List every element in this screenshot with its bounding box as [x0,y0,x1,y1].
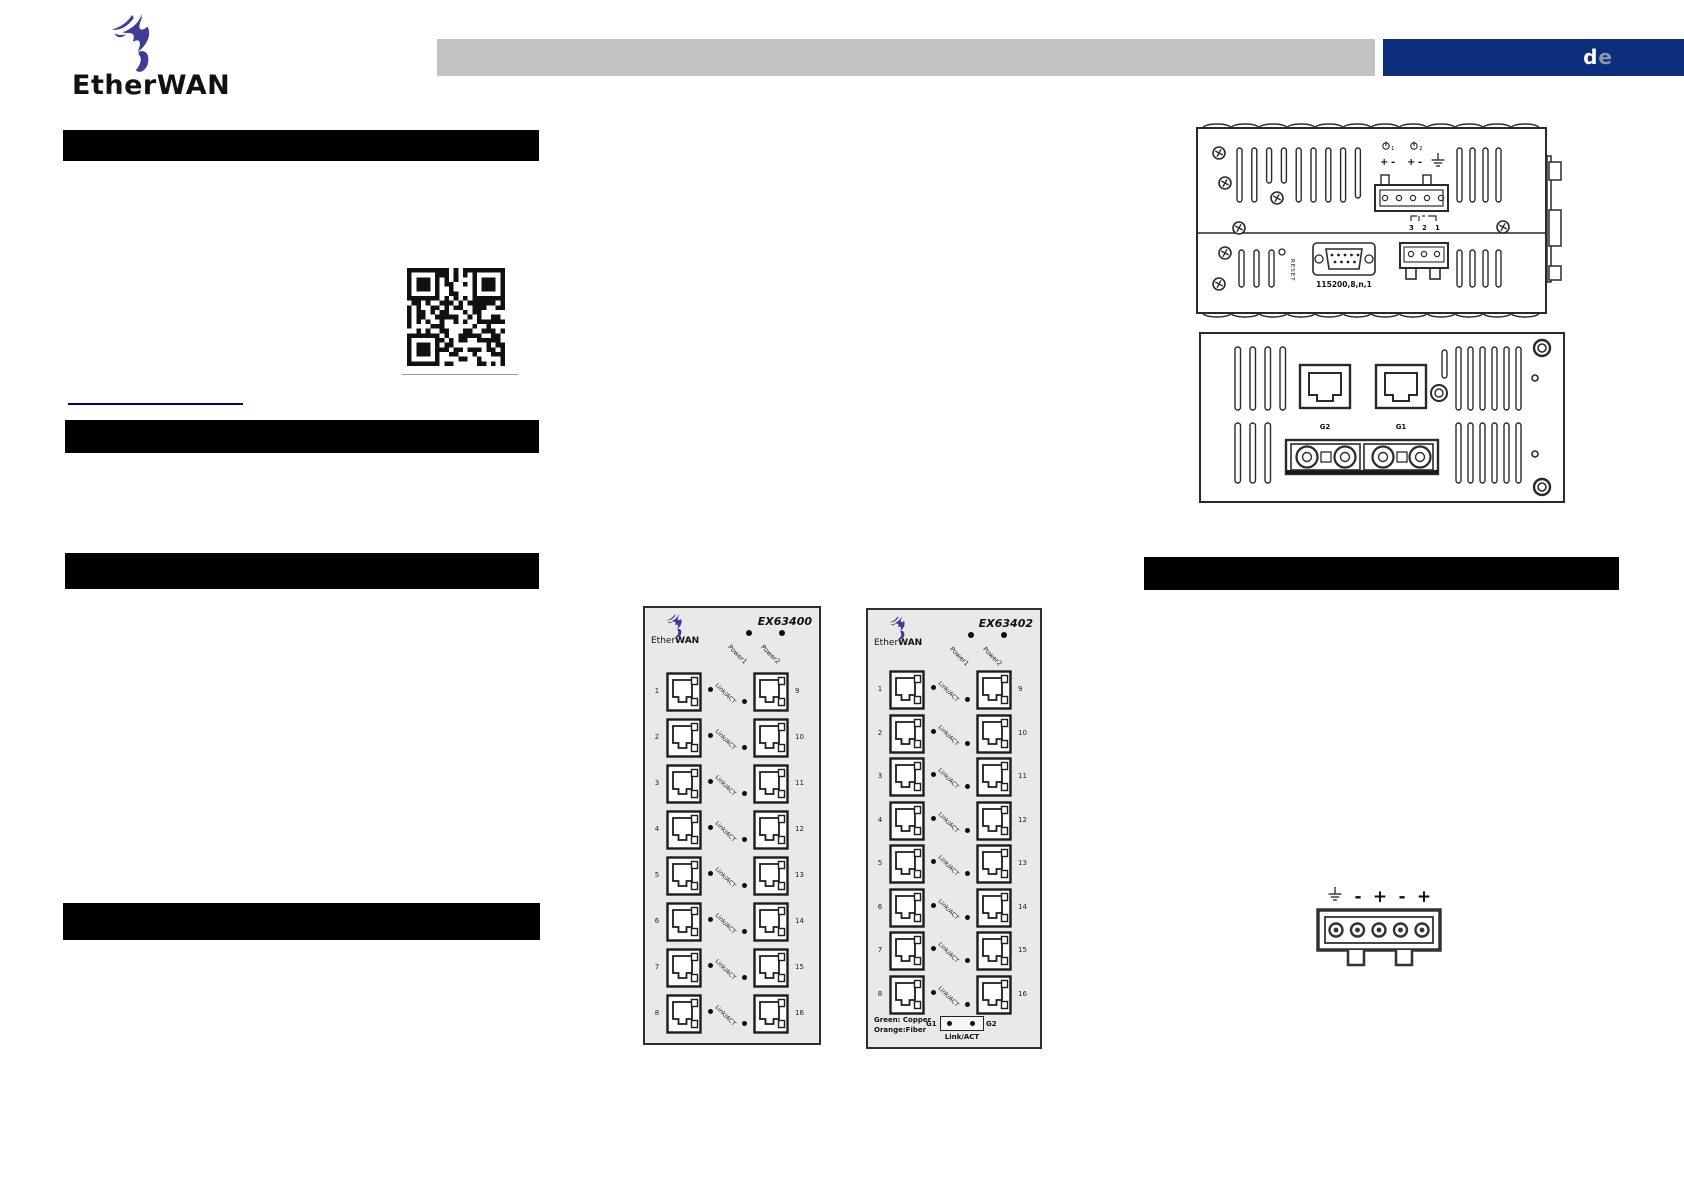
rj45-port-icon [889,757,925,797]
title-bar [437,39,1375,76]
led-dot [931,903,936,908]
power1-label: Power1 [948,645,970,667]
rj45-port-g1[interactable] [1376,365,1426,408]
rj45-port-icon [976,801,1012,841]
port-number: 7 [874,946,886,954]
rj45-port-icon [753,856,789,896]
port-row: 3Link/ACT11 [645,764,819,806]
port-number: 3 [651,779,663,787]
terminal-sign: + [1380,157,1388,168]
port-row: 2Link/ACT10 [645,718,819,760]
link-act-label: Link/ACT [937,898,960,921]
led-dot [742,837,747,842]
link-act-leds: Link/ACT [706,810,752,850]
port-number: 1 [651,687,663,695]
led-dot [742,745,747,750]
rj45-jack[interactable] [976,844,1012,884]
website-link[interactable] [68,403,243,405]
section-bar-4 [63,903,540,940]
port-number: 8 [874,990,886,998]
relay-pin: 3 [1409,224,1414,232]
rj45-port-icon [976,844,1012,884]
terminal-sign: - [1418,157,1422,168]
rj45-jack[interactable] [666,764,702,804]
document-page: EtherWAN de 1 2 + - + - [0,0,1684,1191]
rj45-port-icon [666,994,702,1034]
rj45-port-icon [889,888,925,928]
g2-led [970,1021,975,1026]
power2-led [1001,632,1007,638]
rj45-port-icon [666,718,702,758]
link-act-label: Link/ACT [937,680,960,703]
port-number: 14 [795,917,815,925]
rj45-jack[interactable] [753,948,789,988]
rj45-port-icon [666,672,702,712]
led-dot [708,687,713,692]
g2-label: G2 [1320,423,1331,431]
led-dot [965,958,970,963]
port-number: 7 [651,963,663,971]
rj45-jack[interactable] [976,757,1012,797]
link-act-leds: Link/ACT [706,948,752,988]
rj45-port-icon [753,902,789,942]
led-dot [742,1021,747,1026]
port-row: 1Link/ACT9 [868,670,1040,712]
terminal-sign: + [1407,157,1415,168]
uplink-led-box [940,1016,984,1031]
rj45-jack[interactable] [753,856,789,896]
terminal-sign: - [1354,887,1361,907]
rj45-port-icon [753,718,789,758]
port-number: 15 [1018,946,1038,954]
rj45-jack[interactable] [889,757,925,797]
rj45-jack[interactable] [666,718,702,758]
port-number: 11 [1018,772,1038,780]
port-row: 4Link/ACT12 [868,801,1040,843]
led-dot [742,975,747,980]
port-row: 3Link/ACT11 [868,757,1040,799]
panel-brand: EtherWAN [651,636,699,646]
link-act-leds: Link/ACT [929,931,975,971]
port-number: 3 [874,772,886,780]
port-number: 6 [651,917,663,925]
led-dot [931,816,936,821]
led-dot [931,685,936,690]
link-act-label: Link/ACT [714,1004,737,1027]
qr-code [407,268,505,366]
power2-label: Power2 [981,645,1003,667]
port-row: 1Link/ACT9 [645,672,819,714]
link-act-leds: Link/ACT [929,801,975,841]
led-dot [931,946,936,951]
rj45-port-icon [889,931,925,971]
led-dot [708,779,713,784]
brand-ether: Ether [72,70,157,101]
led-dot [931,729,936,734]
rj45-port-icon [666,810,702,850]
rear-view-diagram: G2 G1 [1198,330,1566,505]
qr-modules [407,268,505,366]
top-view-diagram: 1 2 + - + - 3 2 1 RESET [1196,120,1564,320]
rj45-jack[interactable] [666,672,702,712]
port-row: 8Link/ACT16 [868,975,1040,1017]
port-number: 9 [795,687,815,695]
port-number: 13 [1018,859,1038,867]
led-dot [742,929,747,934]
section-bar-2 [65,420,539,453]
link-act-label: Link/ACT [714,866,737,889]
led-dot [965,741,970,746]
rj45-port-icon [889,801,925,841]
language-bar: de [1383,39,1684,76]
power1-label: 1 [1391,146,1395,152]
rj45-port-icon [666,764,702,804]
link-act-label: Link/ACT [714,682,737,705]
serial-settings-label: 115200,8,n,1 [1316,280,1372,289]
port-row: 5Link/ACT13 [868,844,1040,886]
rj45-jack[interactable] [753,994,789,1034]
port-number: 9 [1018,685,1038,693]
rj45-jack[interactable] [976,714,1012,754]
led-dot [965,784,970,789]
din-rail-clip [1547,156,1561,282]
led-dot [742,791,747,796]
terminal-sign: + [1373,887,1387,907]
relay-pin: 1 [1435,224,1440,232]
power1-led [746,630,752,636]
rj45-port-icon [976,975,1012,1015]
qr-divider [402,374,518,375]
link-act-label: Link/ACT [714,774,737,797]
led-dot [708,963,713,968]
rj45-port-icon [753,764,789,804]
rj45-jack[interactable] [976,975,1012,1015]
rj45-jack[interactable] [753,672,789,712]
link-act-leds: Link/ACT [929,670,975,710]
link-act-leds: Link/ACT [706,764,752,804]
link-act-leds: Link/ACT [706,856,752,896]
rj45-port-icon [889,714,925,754]
port-number: 6 [874,903,886,911]
port-number: 4 [874,816,886,824]
rj45-port-icon [753,810,789,850]
rj45-jack[interactable] [889,975,925,1015]
rj45-port-icon [976,757,1012,797]
rj45-jack[interactable] [976,931,1012,971]
port-number: 1 [874,685,886,693]
panel-brand: EtherWAN [874,638,922,648]
g2-label: G2 [986,1020,997,1028]
port-number: 5 [651,871,663,879]
rj45-jack[interactable] [666,948,702,988]
led-dot [708,733,713,738]
rj45-jack[interactable] [889,844,925,884]
link-act-leds: Link/ACT [929,714,975,754]
rj45-port-icon [666,856,702,896]
panel-model-label: EX63402 [979,617,1033,630]
rj45-jack[interactable] [753,810,789,850]
relay-pin: 2 [1422,224,1427,232]
section-bar-right [1144,557,1619,590]
link-act-leds: Link/ACT [929,888,975,928]
rj45-jack[interactable] [666,994,702,1034]
etherwan-swoosh-icon [663,614,685,638]
terminal-block-diagram: - + - + [1312,880,1446,970]
front-panel-ex63400: EtherWAN EX63400 Power1 Power2 1Link/ACT… [643,606,821,1045]
brand-wan: WAN [157,70,231,101]
etherwan-swoosh-icon [886,616,908,640]
rj45-jack[interactable] [976,670,1012,710]
rj45-port-icon [666,948,702,988]
port-number: 11 [795,779,815,787]
port-number: 16 [1018,990,1038,998]
terminal-sign: - [1398,887,1405,907]
port-number: 8 [651,1009,663,1017]
led-dot [742,699,747,704]
rj45-jack[interactable] [666,810,702,850]
rj45-jack[interactable] [976,888,1012,928]
terminal-leg [1348,950,1364,965]
power2-label: Power2 [759,643,781,665]
lang-letter-d: d [1583,45,1597,69]
link-act-leds: Link/ACT [929,757,975,797]
power2-led [779,630,785,636]
power1-label: Power1 [726,643,748,665]
port-row: 6Link/ACT14 [645,902,819,944]
led-dot [965,915,970,920]
port-number: 10 [795,733,815,741]
led-dot [931,859,936,864]
port-number: 13 [795,871,815,879]
port-number: 4 [651,825,663,833]
led-dot [708,825,713,830]
lang-letter-e: e [1598,45,1612,69]
led-dot [742,883,747,888]
port-number: 10 [1018,729,1038,737]
etherwan-logo: EtherWAN [62,12,232,104]
link-act-label: Link/ACT [937,941,960,964]
led-dot [931,990,936,995]
sc-fiber-ports[interactable] [1286,440,1438,474]
link-act-leds: Link/ACT [929,844,975,884]
etherwan-wordmark: EtherWAN [72,70,230,101]
rj45-jack[interactable] [666,902,702,942]
link-act-leds: Link/ACT [706,994,752,1034]
language-toggle[interactable]: de [1583,47,1612,68]
port-row: 5Link/ACT13 [645,856,819,898]
terminal-sign: - [1391,157,1395,168]
link-act-label: Link/ACT [937,811,960,834]
rj45-port-icon [889,670,925,710]
panel-model-label: EX63400 [758,615,812,628]
led-dot [965,697,970,702]
rj45-jack[interactable] [889,714,925,754]
etherwan-swoosh-icon [102,14,158,74]
rj45-jack[interactable] [753,718,789,758]
led-dot [965,871,970,876]
port-number: 14 [1018,903,1038,911]
port-number: 2 [874,729,886,737]
rj45-jack[interactable] [889,931,925,971]
g1-label: G1 [926,1020,937,1028]
rj45-jack[interactable] [889,670,925,710]
rj45-jack[interactable] [753,902,789,942]
port-number: 2 [651,733,663,741]
rj45-port-icon [976,670,1012,710]
rj45-port-icon [976,888,1012,928]
port-row: 2Link/ACT10 [868,714,1040,756]
power1-led [968,632,974,638]
g1-label: G1 [1396,423,1407,431]
rj45-jack[interactable] [753,764,789,804]
reset-label: RESET [1289,259,1295,282]
link-act-label: Link/ACT [937,854,960,877]
led-dot [931,772,936,777]
rj45-port-icon [976,931,1012,971]
rj45-port-icon [889,975,925,1015]
rj45-port-icon [976,714,1012,754]
port-number: 12 [795,825,815,833]
power2-label: 2 [1419,146,1423,152]
rj45-port-icon [753,672,789,712]
port-number: 12 [1018,816,1038,824]
port-row: 7Link/ACT15 [868,931,1040,973]
rj45-port-icon [666,902,702,942]
link-act-label: Link/ACT [714,820,737,843]
link-act-label: Link/ACT [937,767,960,790]
port-number: 16 [795,1009,815,1017]
g1-led [947,1021,952,1026]
rj45-jack[interactable] [976,801,1012,841]
link-act-leds: Link/ACT [706,718,752,758]
terminal-sign: + [1417,887,1431,907]
terminal-leg [1396,950,1412,965]
led-dot [708,871,713,876]
link-act-leds: Link/ACT [706,902,752,942]
port-row: 6Link/ACT14 [868,888,1040,930]
port-row: 8Link/ACT16 [645,994,819,1036]
link-act-label: Link/ACT [937,985,960,1008]
rj45-port-icon [889,844,925,884]
link-act-label: Link/ACT [714,728,737,751]
link-act-label: Link/ACT [930,1033,994,1041]
led-dot [965,1002,970,1007]
rj45-port-g2[interactable] [1300,365,1350,408]
rj45-port-icon [753,948,789,988]
rj45-jack[interactable] [889,801,925,841]
legend-green: Green: Copper [874,1016,931,1024]
section-bar-3 [65,553,539,589]
legend-orange: Orange:Fiber [874,1026,926,1034]
port-row: 7Link/ACT15 [645,948,819,990]
link-act-label: Link/ACT [714,958,737,981]
led-dot [708,1009,713,1014]
link-act-leds: Link/ACT [706,672,752,712]
rj45-port-icon [753,994,789,1034]
led-dot [965,828,970,833]
link-act-leds: Link/ACT [929,975,975,1015]
link-act-label: Link/ACT [937,724,960,747]
rj45-jack[interactable] [889,888,925,928]
port-number: 15 [795,963,815,971]
port-number: 5 [874,859,886,867]
front-panel-ex63402: EtherWAN EX63402 Power1 Power2 1Link/ACT… [866,608,1042,1049]
rj45-jack[interactable] [666,856,702,896]
link-act-label: Link/ACT [714,912,737,935]
section-bar-1 [63,130,539,161]
port-row: 4Link/ACT12 [645,810,819,852]
led-dot [708,917,713,922]
